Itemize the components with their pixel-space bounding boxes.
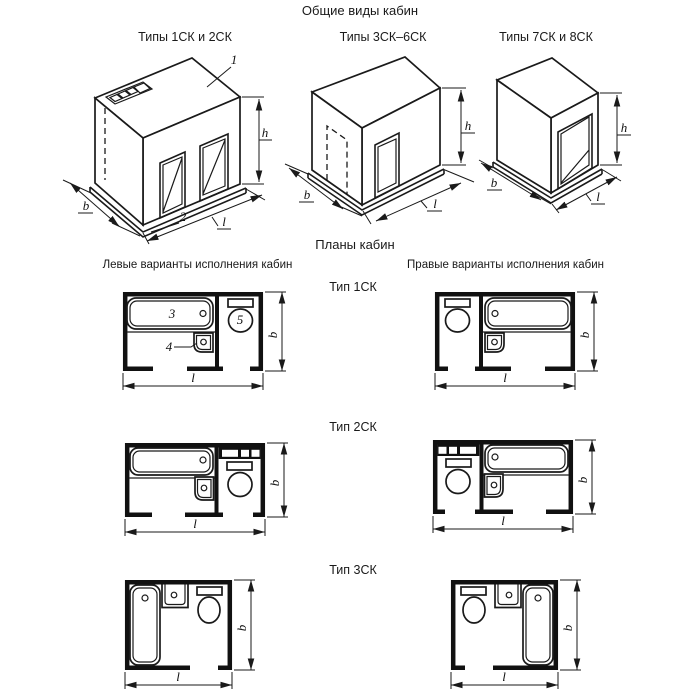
dim-b-label: b — [234, 624, 249, 631]
dim-l-label: l — [193, 516, 197, 531]
dim-b: b — [575, 440, 596, 514]
isometric-view-3ck-6ck: h b l — [283, 52, 483, 237]
dim-h: h — [442, 88, 475, 165]
dim-b-label: b — [577, 331, 592, 338]
plan-1ck-right: l b — [425, 288, 610, 400]
dim-h-label: h — [621, 120, 628, 135]
dim-l-label: l — [191, 370, 195, 385]
plan-3ck-left: l b — [115, 576, 275, 698]
dim-b: b — [265, 292, 286, 371]
left-variants-title: Левые варианты исполнения кабин — [60, 259, 335, 271]
dim-b: b — [577, 292, 598, 371]
view-label-1ck-2ck: Типы 1СК и 2СК — [85, 30, 285, 44]
callout-bath: 3 — [168, 306, 176, 321]
plan-2ck-right: l b — [423, 436, 608, 542]
dim-b: b — [234, 580, 255, 670]
sheet-title: Общие виды кабин — [20, 3, 700, 18]
callout-roof: 1 — [231, 52, 238, 67]
dim-l-label: l — [596, 189, 600, 204]
right-variants-title: Правые варианты исполнения кабин — [368, 259, 643, 271]
dim-b-label: b — [491, 175, 498, 190]
plan-3ck-right: l b — [441, 576, 601, 698]
dim-l: l — [125, 516, 265, 536]
dim-l-label: l — [176, 669, 180, 684]
drawing-sheet: Общие виды кабин Типы 1СК и 2СК Типы 3СК… — [0, 0, 700, 700]
row-label-2ck: Тип 2СК — [203, 420, 503, 434]
dim-b-label: b — [83, 198, 90, 213]
dim-b: b — [267, 443, 288, 517]
plan-1ck-left: 3 4 5 l b — [113, 288, 298, 400]
dim-l: l — [125, 669, 232, 689]
plan-2ck-left: l b — [115, 439, 300, 545]
dim-h-label: h — [262, 125, 269, 140]
dim-l-label: l — [222, 214, 226, 229]
dim-l: l — [451, 669, 558, 689]
dim-l-label: l — [501, 513, 505, 528]
dim-l-label: l — [503, 370, 507, 385]
isometric-view-1ck-2ck: h b l 1 2 — [60, 52, 272, 252]
isometric-view-7ck-8ck: h b l — [478, 46, 643, 236]
dim-b-label: b — [575, 476, 590, 483]
dim-b-label: b — [267, 479, 282, 486]
callout-toilet: 5 — [237, 312, 244, 327]
dim-b-label: b — [265, 331, 280, 338]
view-label-7ck-8ck: Типы 7СК и 8СК — [446, 30, 646, 44]
dim-l-label: l — [433, 196, 437, 211]
callout-base: 2 — [180, 209, 187, 224]
dim-h-label: h — [465, 118, 472, 133]
dim-l: l — [123, 370, 263, 390]
dim-b-label: b — [560, 624, 575, 631]
dim-b: b — [560, 580, 581, 670]
dim-l: l — [435, 370, 575, 390]
callout-washbasin: 4 — [166, 339, 173, 354]
plans-title: Планы кабин — [15, 237, 695, 252]
dim-l-label: l — [502, 669, 506, 684]
dim-l: l — [433, 513, 573, 533]
row-label-3ck: Тип 3СК — [203, 563, 503, 577]
dim-b-label: b — [304, 187, 311, 202]
dim-h: h — [242, 97, 272, 184]
dim-h: h — [600, 93, 631, 165]
